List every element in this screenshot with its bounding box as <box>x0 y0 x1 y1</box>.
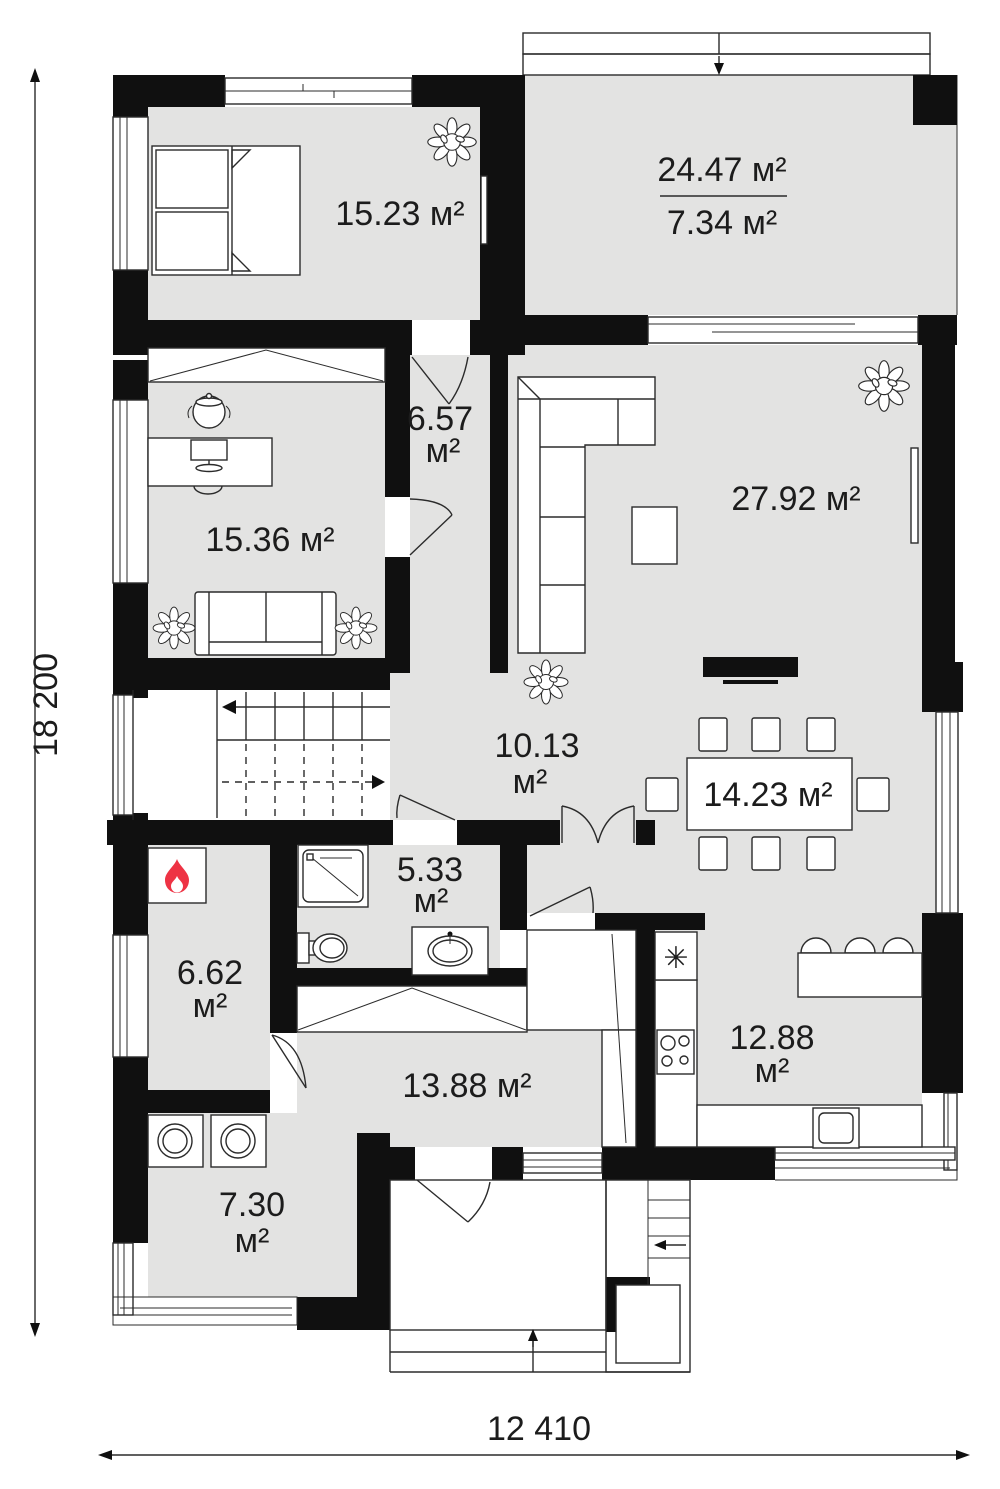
washing-machine-icon <box>148 1115 203 1167</box>
stove-icon <box>657 1030 694 1074</box>
terrace-area-label: 24.47 м² 7.34 м² <box>657 151 787 242</box>
terrace-step <box>523 33 930 54</box>
bed-icon <box>152 146 300 275</box>
boiler-icon <box>148 848 206 903</box>
window-laundry-bottom <box>113 1297 297 1325</box>
window-corridor-bottom <box>523 1153 602 1173</box>
fridge-symbol: ✳ <box>663 942 688 975</box>
fridge-icon: ✳ <box>655 932 697 980</box>
dining-area-label: 14.23 м² <box>703 776 832 814</box>
stairs-up-arrow-icon <box>222 700 390 789</box>
plant-icon <box>859 361 910 412</box>
toilet-icon <box>297 933 347 963</box>
corridor-area-label: 13.88 м² <box>402 1067 531 1105</box>
coffee-table-icon <box>632 507 677 564</box>
porch <box>390 1180 690 1372</box>
plant-icon <box>335 607 377 649</box>
dimension-height: 18 200 <box>27 68 65 1337</box>
dimension-width: 12 410 <box>98 1410 970 1460</box>
width-dimension-label: 12 410 <box>487 1410 591 1448</box>
svg-text:10.13: 10.13 <box>494 727 579 765</box>
svg-text:7.34 м²: 7.34 м² <box>667 204 777 242</box>
kitchen-sink-icon <box>813 1108 859 1148</box>
window-laundry-left <box>113 1243 133 1315</box>
window-boiler-left <box>113 935 148 1057</box>
plant-icon <box>153 607 195 649</box>
height-dimension-label: 18 200 <box>27 653 65 757</box>
window-office-left <box>113 400 148 583</box>
floor-plan-drawing: ✳ <box>0 0 1000 1489</box>
svg-text:м²: м² <box>235 1222 270 1260</box>
svg-text:м²: м² <box>193 987 228 1025</box>
window-bedroom-left <box>113 117 148 270</box>
plant-icon <box>428 118 476 166</box>
window-terrace-slider <box>648 317 918 343</box>
svg-text:м²: м² <box>426 432 461 470</box>
radiator-icon <box>481 176 487 244</box>
porch-side-steps-icon <box>648 1180 690 1285</box>
floor-plan-page: ✳ <box>0 0 1000 1489</box>
entry-arrow-icon <box>528 1329 538 1347</box>
window-stairs-left <box>113 695 133 815</box>
svg-text:24.47 м²: 24.47 м² <box>657 151 786 189</box>
shower-icon <box>298 845 368 907</box>
living-area-label: 27.92 м² <box>731 480 860 518</box>
kitchen-counter-bottom <box>697 1105 922 1147</box>
bedroom-area-label: 15.23 м² <box>335 195 464 233</box>
built-in-wardrobe-icon <box>297 986 527 1032</box>
bar-counter-icon <box>798 938 922 997</box>
door-entrance <box>417 1180 490 1222</box>
svg-text:м²: м² <box>414 882 449 920</box>
sofa-icon <box>195 592 336 655</box>
wardrobe-icon <box>148 348 385 382</box>
svg-text:7.30: 7.30 <box>219 1186 285 1224</box>
window-dining-right <box>936 712 958 913</box>
terrace-entry-arrow-icon <box>714 56 724 75</box>
svg-text:м²: м² <box>513 763 548 801</box>
window-bedroom-top <box>225 78 412 104</box>
stairs-icon <box>133 690 390 820</box>
plant-icon <box>524 660 568 704</box>
room-boiler <box>148 848 206 903</box>
office-area-label: 15.36 м² <box>205 521 334 559</box>
porch-step-frame <box>616 1285 680 1363</box>
wall-tv-icon <box>911 448 918 543</box>
washing-machine-icon <box>211 1115 266 1167</box>
svg-text:м²: м² <box>755 1052 790 1090</box>
terrace-step <box>523 54 930 75</box>
sink-icon <box>412 927 488 975</box>
